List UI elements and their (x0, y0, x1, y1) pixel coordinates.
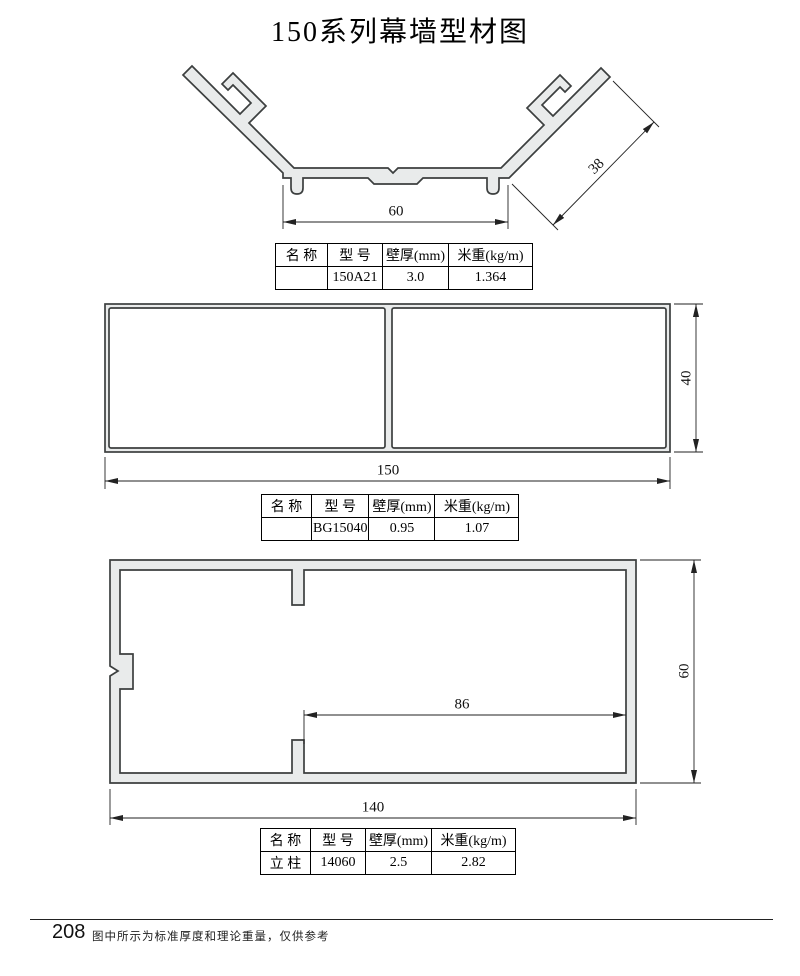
header-wall-thickness: 壁厚(mm) (383, 244, 449, 267)
profile2-drawing (105, 304, 703, 489)
extension-line (512, 184, 558, 230)
header-model: 型 号 (328, 244, 383, 267)
cell-model: 14060 (311, 852, 366, 875)
table-header-row: 名 称 型 号 壁厚(mm) 米重(kg/m) (276, 244, 533, 267)
extension-line (613, 81, 659, 127)
cell-name (262, 518, 312, 541)
table-header-row: 名 称 型 号 壁厚(mm) 米重(kg/m) (262, 495, 519, 518)
footer-note: 图中所示为标准厚度和理论重量，仅供参考 (92, 928, 330, 944)
cell-meter-weight: 1.07 (435, 518, 519, 541)
header-name: 名 称 (262, 495, 312, 518)
profile3-height-dim-label: 60 (677, 664, 694, 679)
profile1-drawing (183, 66, 659, 230)
header-model: 型 号 (311, 829, 366, 852)
table-row: BG15040 0.95 1.07 (262, 518, 519, 541)
page-number: 208 (52, 921, 85, 944)
header-wall-thickness: 壁厚(mm) (366, 829, 432, 852)
cell-wall-thickness: 3.0 (383, 267, 449, 290)
profile1-width-dim-label: 60 (389, 204, 404, 221)
cell-model: 150A21 (328, 267, 383, 290)
cell-model: BG15040 (312, 518, 369, 541)
catalog-page: 150系列幕墙型材图 (0, 0, 800, 976)
profile1-spec-table: 名 称 型 号 壁厚(mm) 米重(kg/m) 150A21 3.0 1.364 (275, 243, 533, 290)
header-name: 名 称 (276, 244, 328, 267)
profile3-drawing (110, 560, 701, 825)
header-wall-thickness: 壁厚(mm) (369, 495, 435, 518)
cell-name (276, 267, 328, 290)
profile2-right-cavity (392, 308, 666, 448)
profile1-shape (183, 66, 610, 194)
profile3-spec-table: 名 称 型 号 壁厚(mm) 米重(kg/m) 立 柱 14060 2.5 2.… (260, 828, 516, 875)
profile2-height-dim-label: 40 (679, 371, 696, 386)
header-name: 名 称 (261, 829, 311, 852)
profile3-width-dim-label: 140 (362, 800, 385, 817)
cell-wall-thickness: 2.5 (366, 852, 432, 875)
table-row: 150A21 3.0 1.364 (276, 267, 533, 290)
table-header-row: 名 称 型 号 壁厚(mm) 米重(kg/m) (261, 829, 516, 852)
profile2-left-cavity (109, 308, 385, 448)
header-meter-weight: 米重(kg/m) (432, 829, 516, 852)
profile3-inner-dim-label: 86 (455, 697, 470, 714)
dimension-line (553, 122, 654, 225)
cell-meter-weight: 1.364 (449, 267, 533, 290)
footer-divider (30, 919, 773, 920)
profile2-width-dim-label: 150 (377, 463, 400, 480)
cell-name: 立 柱 (261, 852, 311, 875)
profile2-spec-table: 名 称 型 号 壁厚(mm) 米重(kg/m) BG15040 0.95 1.0… (261, 494, 519, 541)
header-model: 型 号 (312, 495, 369, 518)
table-row: 立 柱 14060 2.5 2.82 (261, 852, 516, 875)
profile3-cavity (120, 570, 626, 773)
header-meter-weight: 米重(kg/m) (435, 495, 519, 518)
cell-wall-thickness: 0.95 (369, 518, 435, 541)
header-meter-weight: 米重(kg/m) (449, 244, 533, 267)
cell-meter-weight: 2.82 (432, 852, 516, 875)
